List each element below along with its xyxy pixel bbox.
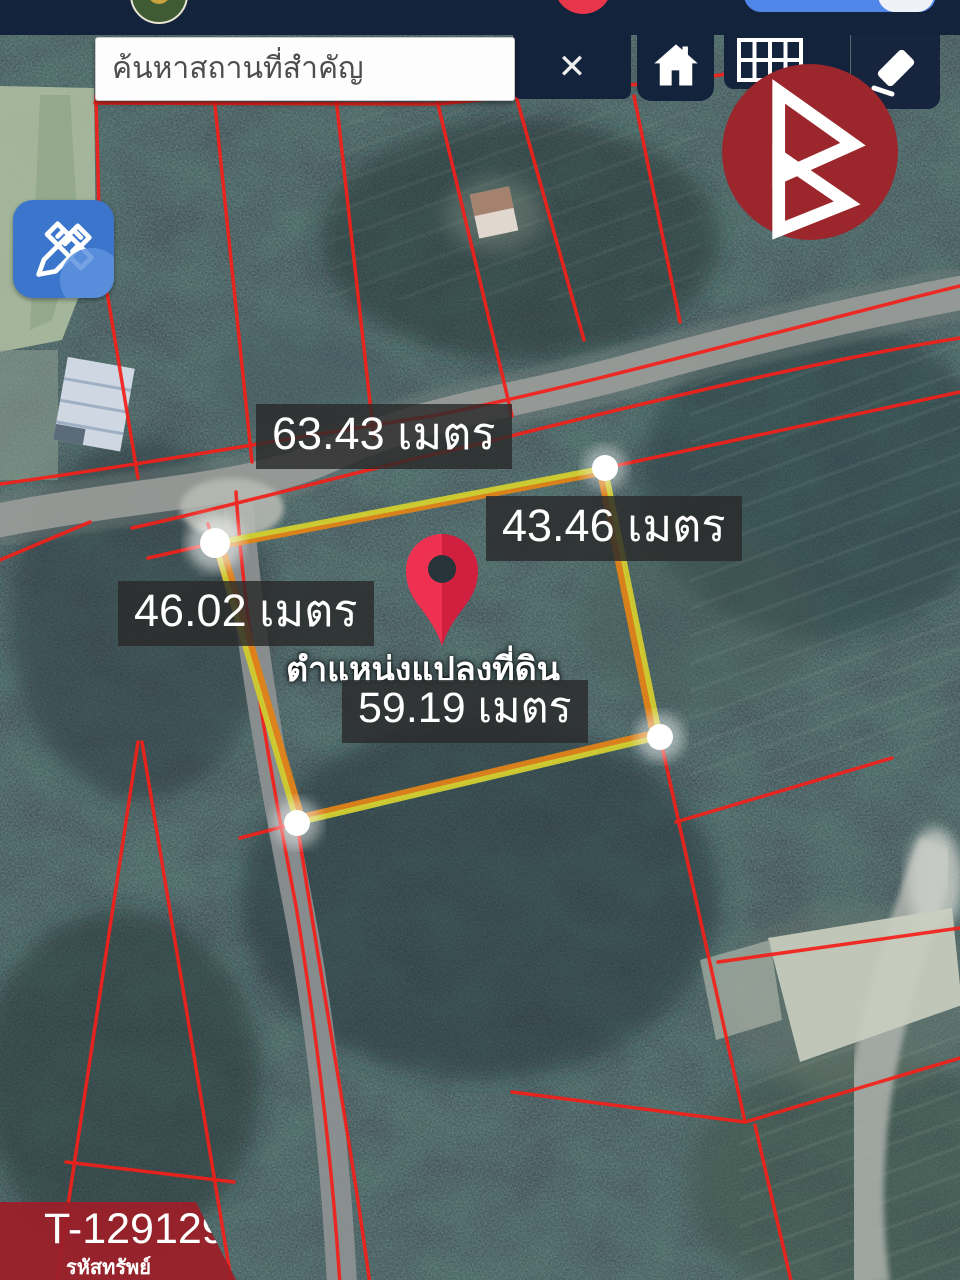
home-icon <box>650 40 702 97</box>
vertex-handle[interactable] <box>273 799 321 847</box>
search-box <box>95 37 515 101</box>
measure-edit-button[interactable] <box>13 200 114 298</box>
measurement-label-top: 63.43 เมตร <box>256 404 512 469</box>
measurement-label-right: 43.46 เมตร <box>486 496 742 561</box>
brand-logo <box>722 64 898 240</box>
search-clear-button[interactable]: ✕ <box>513 35 631 99</box>
home-button[interactable] <box>637 35 714 101</box>
map-app: ตำแหน่งแปลงที่ดิน 63.43 เมตร 43.46 เมตร … <box>0 0 960 1280</box>
vertex-handle[interactable] <box>187 515 243 571</box>
measurement-label-left: 46.02 เมตร <box>118 581 374 646</box>
vertex-handle[interactable] <box>583 446 627 490</box>
measurement-label-bottom: 59.19 เมตร <box>342 680 588 743</box>
close-icon: ✕ <box>558 47 587 87</box>
search-input[interactable] <box>96 38 514 100</box>
vertex-handle[interactable] <box>636 713 684 761</box>
property-code-caption: รหัสทรัพย์ <box>0 1251 236 1280</box>
toggle-knob <box>878 0 934 12</box>
property-badge: T-129129 รหัสทรัพย์ <box>0 1202 236 1280</box>
toggle-pill[interactable] <box>744 0 936 12</box>
